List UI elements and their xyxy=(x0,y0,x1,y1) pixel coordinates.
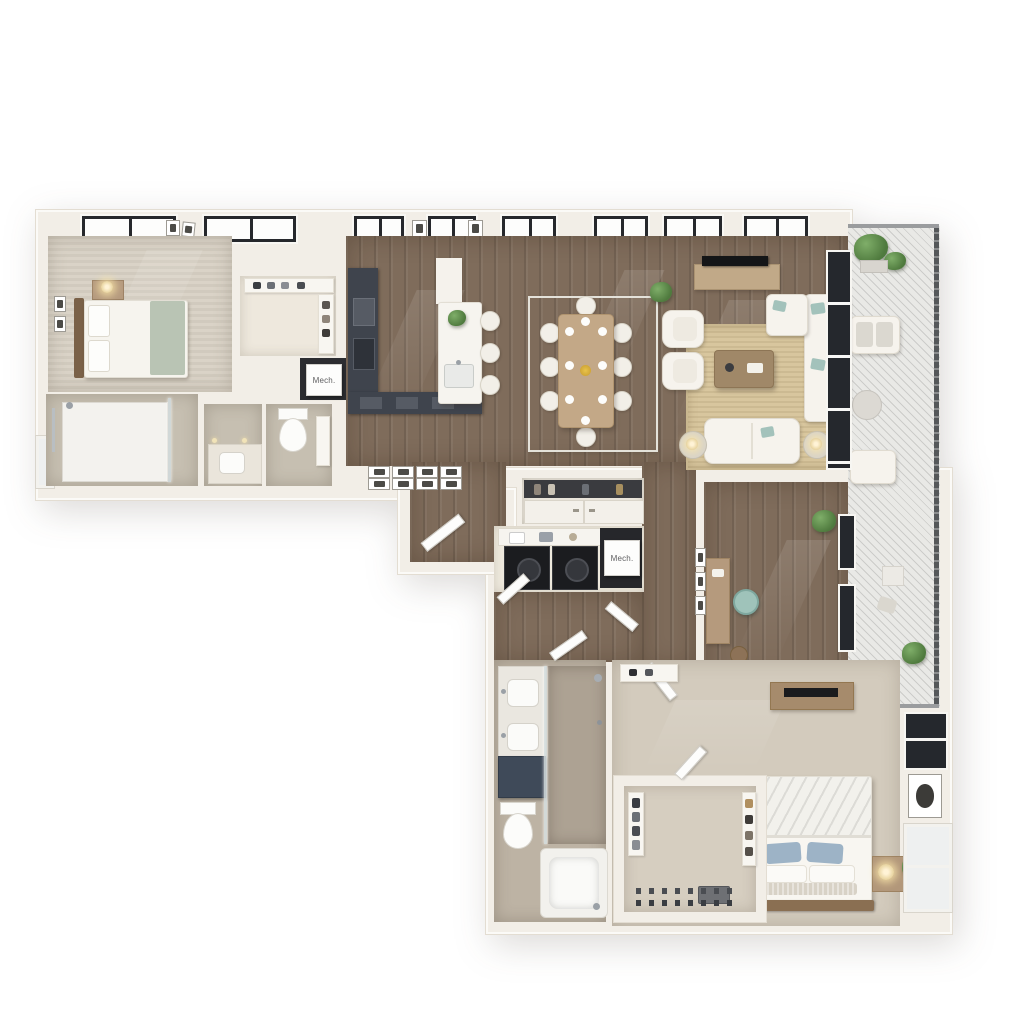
balcony-planter-pot xyxy=(860,260,888,273)
floor-plan-canvas: Mech. xyxy=(0,0,1024,1024)
balcony-bench-cushion-left xyxy=(856,322,873,347)
balcony-bench-cushion-right xyxy=(876,322,893,347)
upper-wing-walls xyxy=(36,210,852,500)
balcony-bench xyxy=(850,316,900,354)
balcony-table xyxy=(852,390,882,420)
lower-wing-walls xyxy=(486,468,952,934)
balcony-plant-large xyxy=(854,234,888,262)
balcony-railing-top xyxy=(848,224,939,228)
balcony-plant-small xyxy=(884,252,906,270)
floor-plan: Mech. xyxy=(0,0,1024,1024)
entry-vestibule-walls xyxy=(398,488,516,574)
